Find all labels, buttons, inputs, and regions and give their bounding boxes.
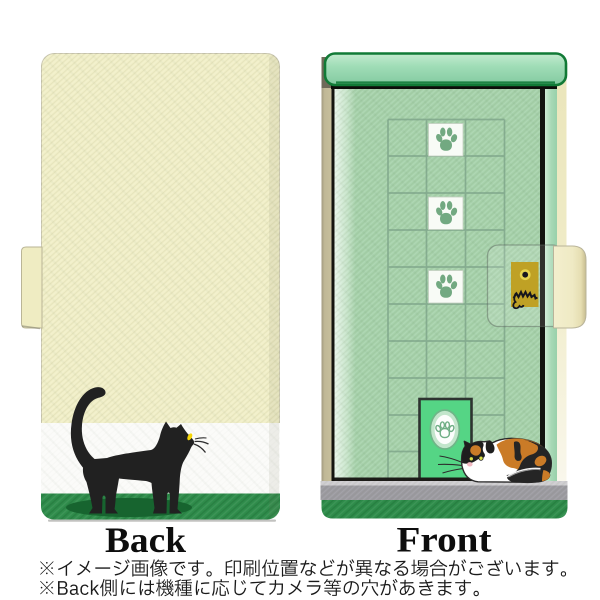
svg-text:Front: Front — [397, 520, 492, 560]
svg-text:Back: Back — [105, 520, 186, 560]
